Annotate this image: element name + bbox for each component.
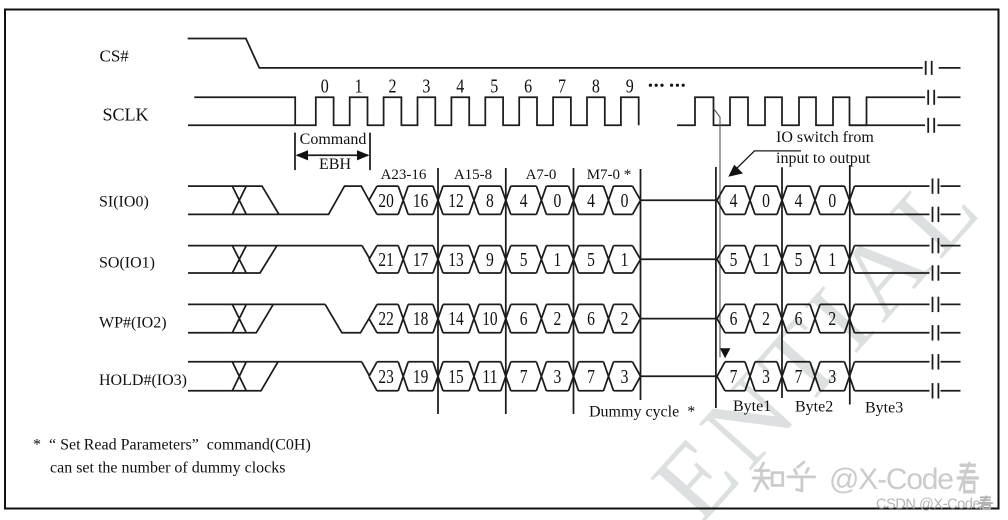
svg-text:CSDN @X-Code: CSDN @X-Code — [876, 497, 981, 513]
svg-text:11: 11 — [482, 367, 497, 388]
svg-text:0: 0 — [554, 191, 562, 212]
svg-text:1: 1 — [554, 250, 562, 271]
svg-text:3: 3 — [554, 367, 562, 388]
svg-text:2: 2 — [621, 309, 629, 330]
svg-text:SO(IO1): SO(IO1) — [99, 254, 155, 271]
svg-text:6: 6 — [520, 309, 528, 330]
svg-text:17: 17 — [413, 250, 429, 271]
svg-text:7: 7 — [520, 367, 528, 388]
svg-text:2: 2 — [828, 309, 836, 330]
svg-text:3: 3 — [621, 367, 629, 388]
svg-text:IO switch from: IO switch from — [776, 129, 874, 146]
svg-text:0: 0 — [762, 191, 770, 212]
svg-text:Byte1: Byte1 — [733, 398, 771, 415]
svg-text:6: 6 — [795, 309, 803, 330]
svg-text:A7-0: A7-0 — [526, 167, 557, 183]
svg-text:1: 1 — [828, 250, 836, 271]
svg-text:0: 0 — [828, 191, 836, 212]
svg-text:* “ Set Read Parameters” com: * “ Set Read Parameters” command(C0H) — [33, 437, 311, 454]
svg-text:A15-8: A15-8 — [454, 167, 492, 183]
svg-text:9: 9 — [486, 250, 494, 271]
svg-text:Byte2: Byte2 — [795, 399, 833, 416]
svg-text:5: 5 — [490, 76, 498, 98]
svg-text:19: 19 — [413, 367, 428, 388]
svg-text:6: 6 — [524, 76, 532, 98]
svg-text:CS#: CS# — [100, 47, 130, 66]
svg-text:A23-16: A23-16 — [381, 167, 427, 183]
svg-text:0: 0 — [321, 76, 329, 98]
svg-text:4: 4 — [520, 191, 528, 212]
svg-text:9: 9 — [626, 76, 634, 98]
svg-text:4: 4 — [456, 76, 464, 98]
svg-text:8: 8 — [592, 76, 600, 98]
svg-text:15: 15 — [448, 367, 463, 388]
svg-text:HOLD#(IO3): HOLD#(IO3) — [99, 372, 187, 389]
svg-text:6: 6 — [587, 309, 595, 330]
svg-text:3: 3 — [422, 76, 430, 98]
svg-text:1: 1 — [762, 250, 770, 271]
svg-text:7: 7 — [730, 367, 738, 388]
svg-text:16: 16 — [413, 191, 429, 212]
svg-text:7: 7 — [587, 367, 595, 388]
svg-text:M7-0 *: M7-0 * — [587, 167, 632, 183]
svg-text:23: 23 — [378, 367, 393, 388]
svg-text:4: 4 — [587, 191, 595, 212]
svg-text:can set the number of dummy cl: can set the number of dummy clocks — [50, 460, 286, 477]
svg-text:3: 3 — [828, 367, 836, 388]
svg-text:5: 5 — [520, 250, 528, 271]
svg-text:@X-Code: @X-Code — [829, 463, 953, 496]
svg-text:8: 8 — [486, 191, 494, 212]
svg-text:input to output: input to output — [776, 150, 871, 167]
svg-text:3: 3 — [762, 367, 770, 388]
svg-text:4: 4 — [730, 191, 738, 212]
svg-text:5: 5 — [587, 250, 595, 271]
svg-text:22: 22 — [378, 309, 393, 330]
svg-text:21: 21 — [378, 250, 393, 271]
svg-text:1: 1 — [355, 76, 363, 98]
svg-text:4: 4 — [795, 191, 803, 212]
svg-text:2: 2 — [389, 76, 397, 98]
svg-text:7: 7 — [795, 367, 803, 388]
svg-text:Command: Command — [300, 131, 367, 148]
svg-text:WP#(IO2): WP#(IO2) — [99, 315, 167, 332]
svg-text:6: 6 — [730, 309, 738, 330]
svg-text:13: 13 — [448, 250, 463, 271]
svg-text:1: 1 — [621, 250, 629, 271]
svg-text:2: 2 — [762, 309, 770, 330]
svg-text:10: 10 — [482, 309, 497, 330]
svg-text:18: 18 — [413, 309, 428, 330]
svg-text:7: 7 — [558, 76, 566, 98]
svg-text:5: 5 — [730, 250, 738, 271]
svg-text:14: 14 — [448, 309, 464, 330]
svg-text:SI(IO0): SI(IO0) — [99, 193, 149, 210]
svg-text:2: 2 — [554, 309, 562, 330]
svg-text:EBH: EBH — [319, 156, 351, 173]
svg-text:0: 0 — [621, 191, 629, 212]
svg-text:SCLK: SCLK — [103, 104, 149, 124]
svg-text:Dummy cycle *: Dummy cycle * — [589, 403, 695, 420]
svg-text:Byte3: Byte3 — [865, 399, 903, 416]
svg-text:20: 20 — [378, 191, 393, 212]
svg-text:12: 12 — [448, 191, 463, 212]
svg-text:5: 5 — [795, 250, 803, 271]
